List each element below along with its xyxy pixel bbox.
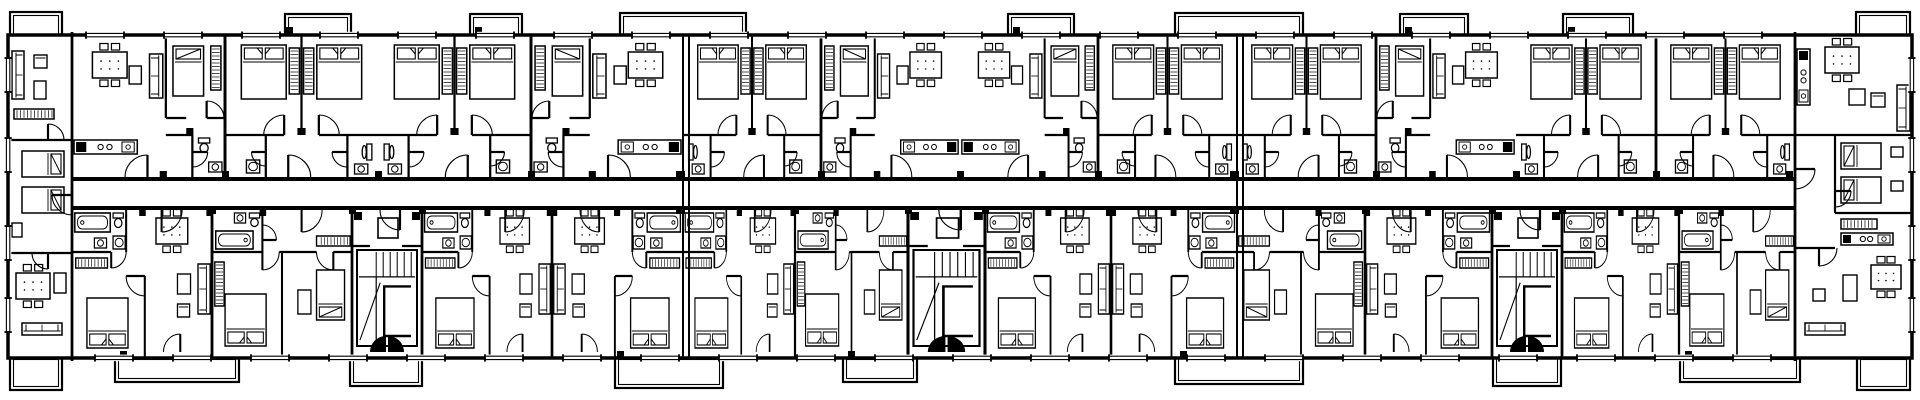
window <box>5 58 12 92</box>
window <box>329 354 367 361</box>
window <box>1343 354 1381 361</box>
window <box>86 32 124 39</box>
window <box>1655 354 1693 361</box>
window <box>1100 32 1138 39</box>
window <box>953 354 991 361</box>
window <box>1577 354 1615 361</box>
window <box>1490 32 1528 39</box>
window <box>1499 354 1537 361</box>
window <box>563 354 601 361</box>
window <box>1265 354 1303 361</box>
window <box>1908 138 1915 172</box>
window <box>1187 354 1225 361</box>
apartment-building-floor-plan <box>0 0 1920 400</box>
window <box>1256 32 1294 39</box>
window <box>797 354 835 361</box>
window <box>1334 32 1372 39</box>
window <box>407 354 445 361</box>
window <box>1412 32 1450 39</box>
window <box>875 354 913 361</box>
window <box>719 354 757 361</box>
building-outline <box>8 35 1912 358</box>
window <box>173 354 211 361</box>
window <box>398 32 436 39</box>
window <box>1421 354 1459 361</box>
floor-plan-svg <box>0 0 1920 400</box>
window <box>1908 226 1915 260</box>
window <box>554 32 592 39</box>
window <box>5 226 12 260</box>
window <box>242 32 280 39</box>
window <box>164 32 202 39</box>
window <box>1724 32 1762 39</box>
window <box>1646 32 1684 39</box>
window <box>251 354 289 361</box>
window <box>1568 32 1606 39</box>
window <box>320 32 358 39</box>
floor-plan <box>0 0 1920 400</box>
window <box>1109 354 1147 361</box>
window <box>1022 32 1060 39</box>
window <box>866 32 904 39</box>
window <box>1908 298 1915 332</box>
window <box>1733 354 1771 361</box>
window <box>1908 58 1915 92</box>
window <box>5 138 12 172</box>
window <box>476 32 514 39</box>
window <box>710 32 748 39</box>
window <box>944 32 982 39</box>
window <box>95 354 133 361</box>
window <box>5 298 12 332</box>
window <box>641 354 679 361</box>
window <box>632 32 670 39</box>
window <box>1178 32 1216 39</box>
window <box>485 354 523 361</box>
window <box>788 32 826 39</box>
window <box>1031 354 1069 361</box>
